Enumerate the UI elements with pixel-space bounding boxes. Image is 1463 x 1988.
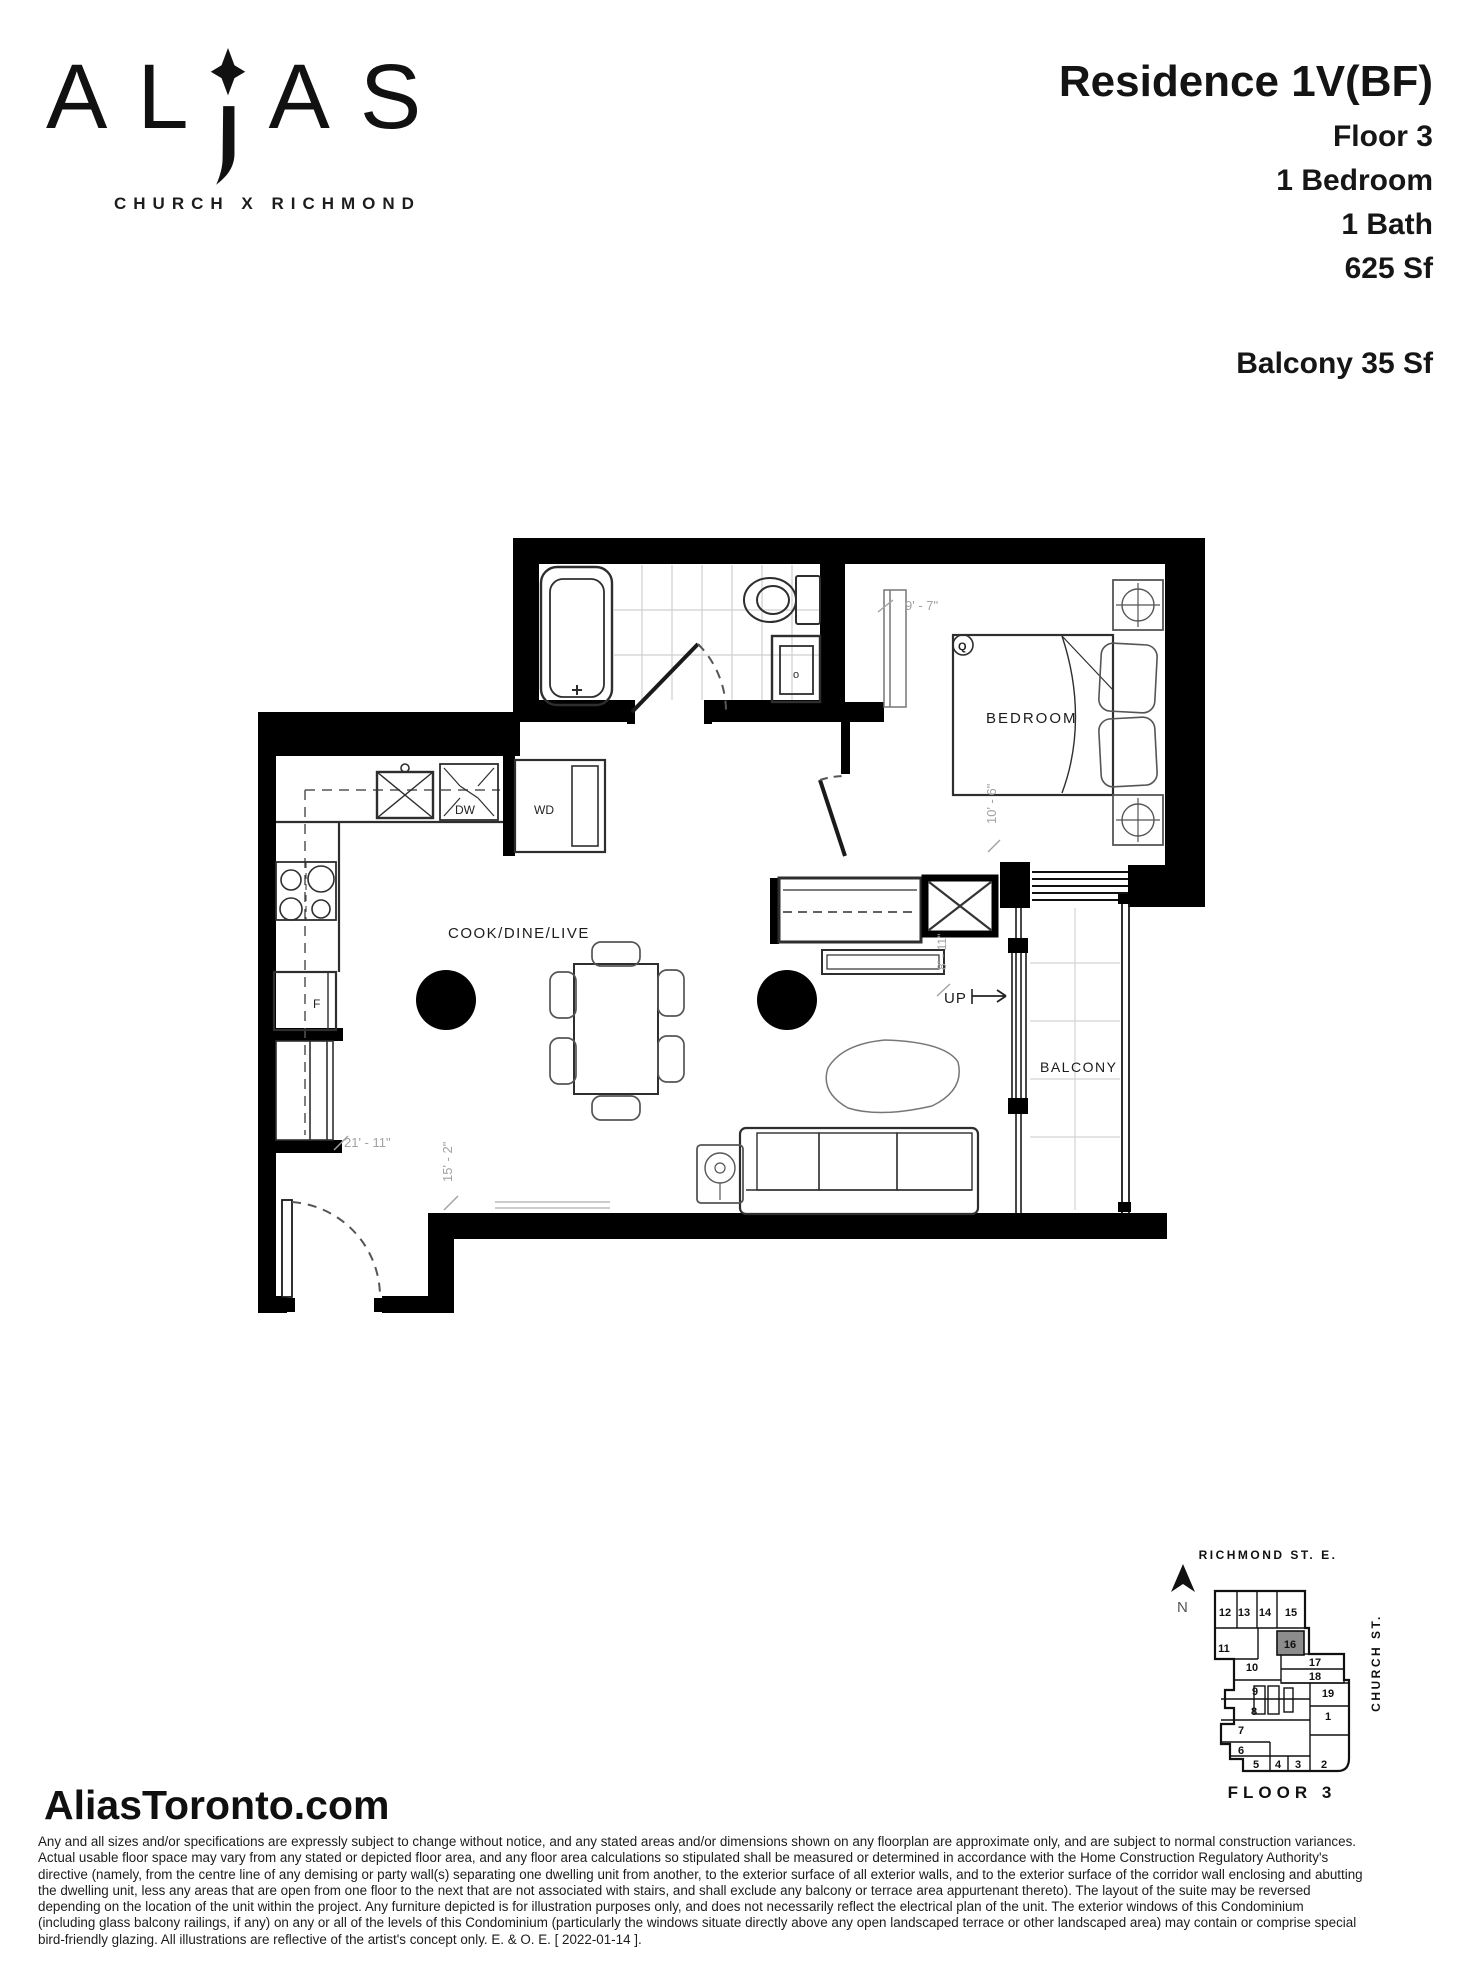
side-table-plant xyxy=(697,1145,743,1203)
stove xyxy=(276,862,336,920)
unit-number: 9 xyxy=(1252,1686,1258,1698)
entry-door xyxy=(282,1200,380,1297)
hall-closet xyxy=(779,878,921,942)
bathroom: o xyxy=(541,565,820,712)
balcony-railing xyxy=(1118,894,1131,1213)
unit-number: 4 xyxy=(1275,1759,1282,1771)
balcony-label: BALCONY xyxy=(1040,1059,1117,1075)
bedroom-dresser xyxy=(884,590,906,707)
unit-number: 3 xyxy=(1295,1759,1301,1771)
disclaimer-line: the dwelling unit, less any areas that a… xyxy=(38,1883,1440,1899)
key-plan: RICHMOND ST. E. N CHURCH ST. xyxy=(1158,1528,1438,1858)
street-right-label: CHURCH ST. xyxy=(1369,1614,1383,1712)
unit-number: 2 xyxy=(1321,1759,1327,1771)
unit-number: 10 xyxy=(1246,1662,1258,1674)
keyplan-unit-numbers: 12 13 14 15 11 16 17 18 10 9 19 8 1 7 6 … xyxy=(1218,1607,1334,1771)
sofa xyxy=(740,1128,978,1214)
unit-number: 12 xyxy=(1219,1607,1231,1619)
unit-number: 15 xyxy=(1285,1607,1297,1619)
fridge-label: F xyxy=(313,997,320,1011)
structural-column xyxy=(757,970,817,1030)
unit-number: 6 xyxy=(1238,1745,1244,1757)
unit-number: 11 xyxy=(1218,1643,1230,1655)
washer-dryer-label: WD xyxy=(534,803,554,817)
cook-dine-live-label: COOK/DINE/LIVE xyxy=(448,925,590,942)
dining-table xyxy=(574,964,658,1094)
unit-number: 17 xyxy=(1309,1657,1321,1669)
bedroom-label: BEDROOM xyxy=(986,710,1078,727)
floorplan-sheet: AL AS CHURCH X RICHMOND Residence 1V(BF)… xyxy=(0,0,1463,1988)
nightstand-lamp xyxy=(1113,795,1163,845)
washer-dryer-closet xyxy=(515,760,605,852)
dim-living-width: 21' - 11" xyxy=(344,1135,391,1150)
shaft xyxy=(925,878,995,934)
dishwasher-label: DW xyxy=(455,803,476,817)
disclaimer-line: directive (namely, from the centre line … xyxy=(38,1867,1440,1883)
up-label: UP xyxy=(944,990,967,1007)
bedroom-door xyxy=(820,776,845,856)
disclaimer-line: Any and all sizes and/or specifications … xyxy=(38,1834,1440,1850)
keyplan-building xyxy=(1215,1591,1349,1771)
disclaimer-line: (including glass balcony railings, if an… xyxy=(38,1915,1440,1931)
pantry-closet xyxy=(276,1041,333,1140)
disclaimer-line: bird-friendly glazing. All illustrations… xyxy=(38,1932,1440,1948)
disclaimer-line: depending on the location of the unit wi… xyxy=(38,1899,1440,1915)
window-sill xyxy=(495,1202,610,1208)
dim-bedroom-depth: 10' - 6" xyxy=(984,783,999,824)
legal-disclaimer: Any and all sizes and/or specifications … xyxy=(38,1834,1440,1948)
keyplan-floor-label: FLOOR 3 xyxy=(1228,1783,1337,1802)
unit-number: 13 xyxy=(1238,1607,1250,1619)
up-arrow xyxy=(972,989,1006,1004)
hall-closet-shaft xyxy=(779,776,1006,1004)
disclaimer-line: Actual usable floor space may vary from … xyxy=(38,1850,1440,1866)
unit-number: 7 xyxy=(1238,1725,1244,1737)
kitchen-sink xyxy=(377,764,433,818)
dim-living-depth: 15' - 2" xyxy=(440,1141,455,1182)
toilet xyxy=(744,576,820,624)
living-dining xyxy=(282,942,978,1297)
north-arrow-icon xyxy=(1171,1564,1195,1592)
unit-number: 1 xyxy=(1325,1711,1331,1723)
website-link[interactable]: AliasToronto.com xyxy=(44,1782,389,1829)
sliding-door xyxy=(1008,908,1028,1213)
unit-number: 18 xyxy=(1309,1671,1321,1683)
area-rug xyxy=(826,1040,959,1113)
unit-number: 19 xyxy=(1322,1688,1334,1700)
dim-hall-depth: 8' - 11" xyxy=(935,934,949,970)
unit-number: 8 xyxy=(1251,1706,1257,1718)
balcony-area xyxy=(1008,872,1131,1213)
unit-number: 16 xyxy=(1284,1639,1296,1651)
balcony-louvers xyxy=(1032,872,1128,900)
pillows xyxy=(1098,643,1157,788)
unit-number: 5 xyxy=(1253,1759,1259,1771)
upper-cabinets-dashed xyxy=(305,790,500,1135)
bathtub xyxy=(541,567,612,705)
north-label: N xyxy=(1177,1599,1188,1616)
street-top-label: RICHMOND ST. E. xyxy=(1199,1548,1338,1562)
media-console xyxy=(822,950,944,974)
dim-bedroom-width: 9' - 7" xyxy=(905,598,938,613)
unit-number: 14 xyxy=(1259,1607,1272,1619)
sink-faucet-label: o xyxy=(793,669,799,681)
structural-column xyxy=(416,970,476,1030)
nightstand-lamp xyxy=(1113,580,1163,630)
plan-dimensions: 9' - 7" 10' - 6" 8' - 11" 21' - 11" 15' … xyxy=(334,598,1000,1210)
bed-size-label: Q xyxy=(958,641,967,653)
dim-ticks xyxy=(334,600,1000,1210)
kitchen-counter xyxy=(276,822,503,972)
